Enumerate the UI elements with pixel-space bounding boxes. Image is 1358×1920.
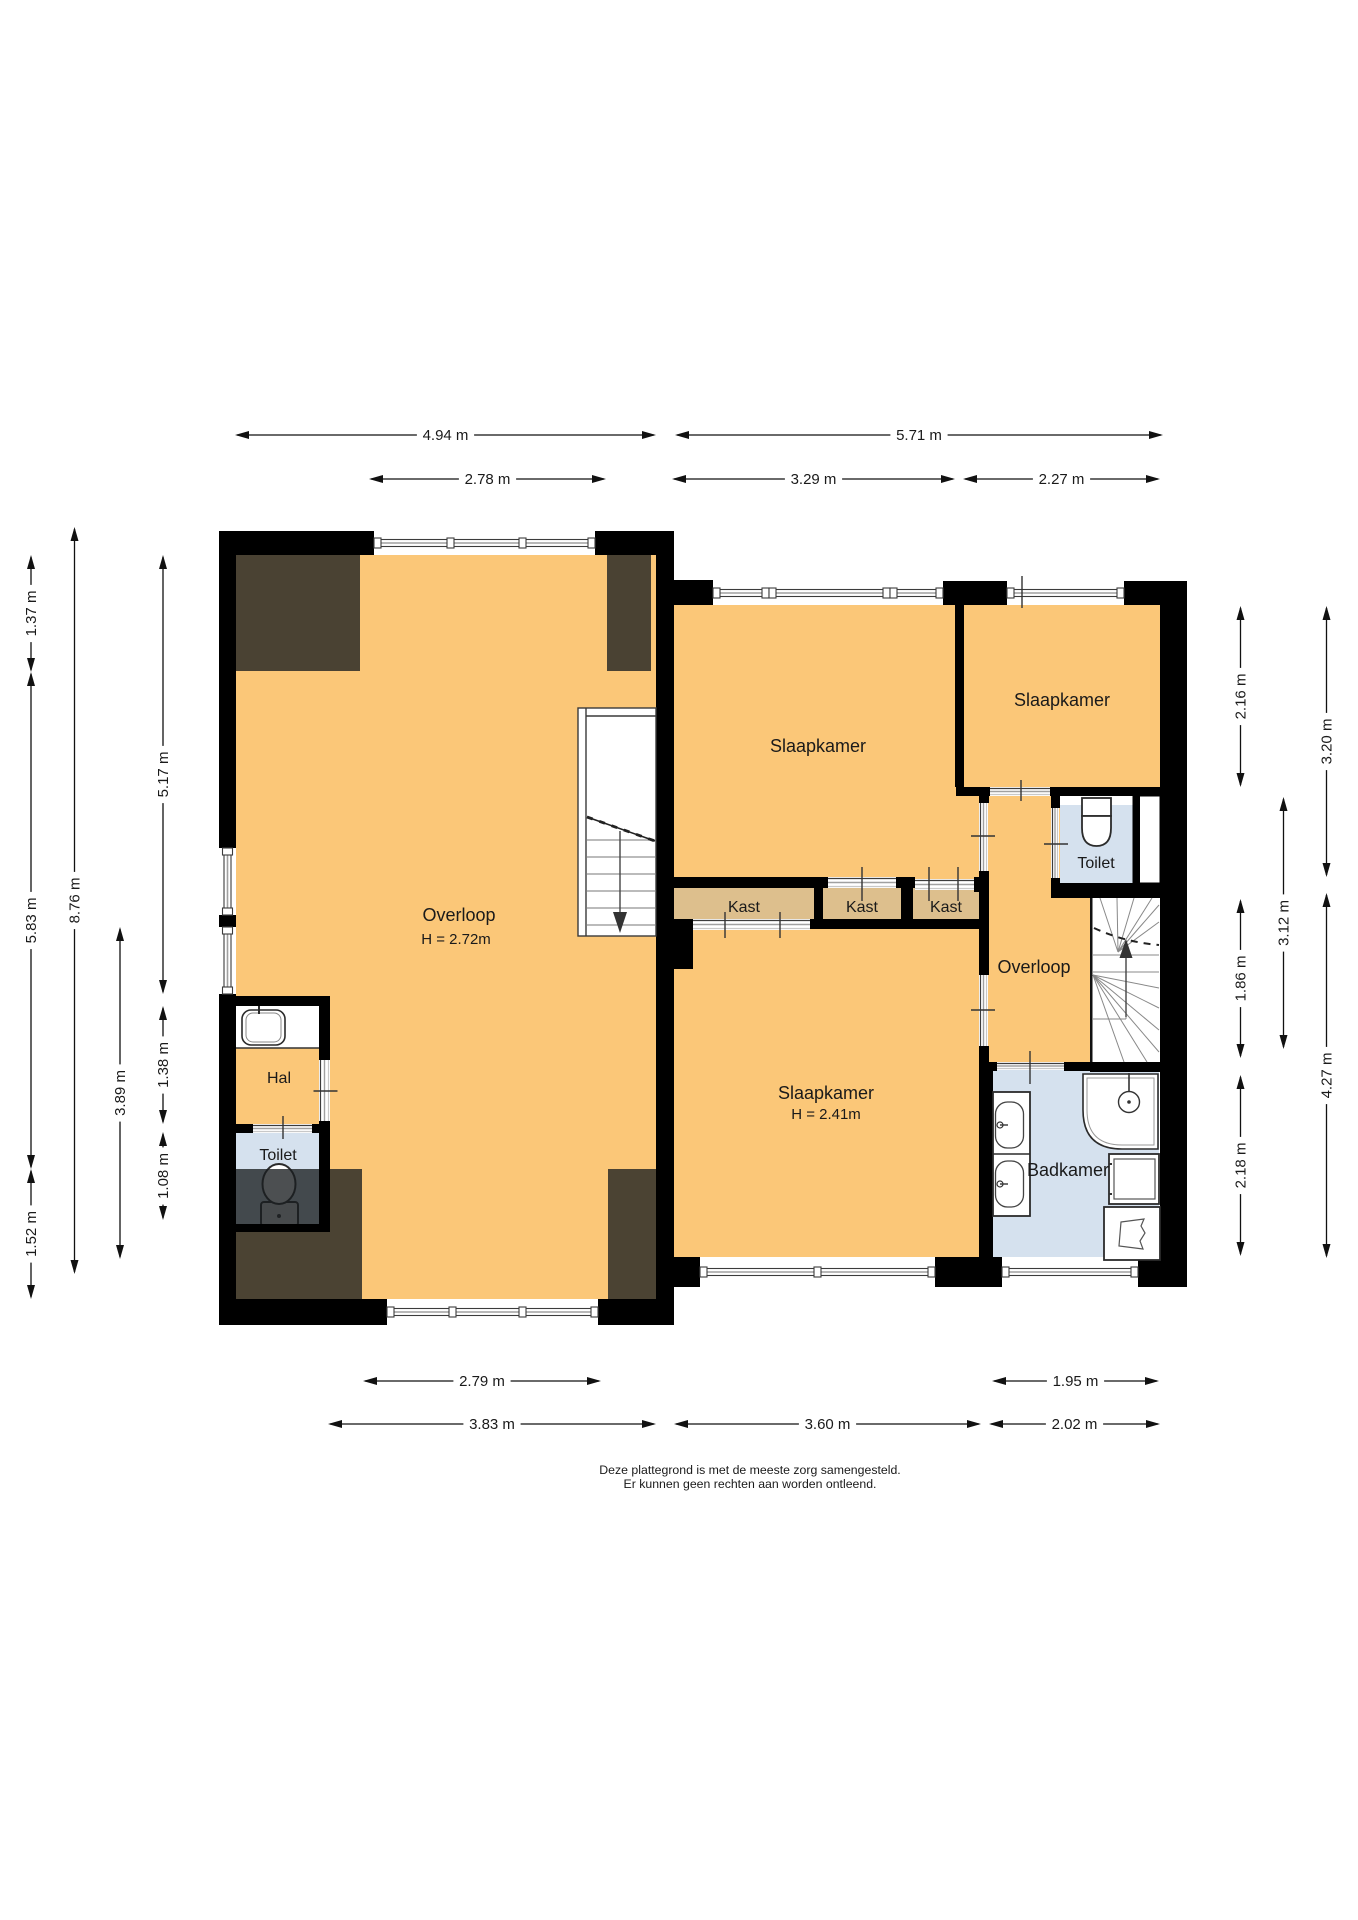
svg-text:Overloop: Overloop <box>422 905 495 925</box>
svg-text:3.60 m: 3.60 m <box>805 1416 851 1433</box>
svg-text:1.95 m: 1.95 m <box>1053 1373 1099 1390</box>
svg-text:4.94 m: 4.94 m <box>423 427 469 444</box>
svg-text:Kast: Kast <box>930 899 963 916</box>
svg-text:Overloop: Overloop <box>997 957 1070 977</box>
svg-text:Badkamer: Badkamer <box>1027 1160 1109 1180</box>
svg-text:3.29 m: 3.29 m <box>791 471 837 488</box>
svg-text:2.18 m: 2.18 m <box>1233 1143 1250 1189</box>
svg-text:1.08 m: 1.08 m <box>155 1153 172 1199</box>
svg-text:2.27 m: 2.27 m <box>1039 471 1085 488</box>
svg-text:4.27 m: 4.27 m <box>1319 1053 1336 1099</box>
svg-text:2.02 m: 2.02 m <box>1052 1416 1098 1433</box>
svg-text:H = 2.41m: H = 2.41m <box>791 1106 861 1123</box>
svg-text:3.20 m: 3.20 m <box>1319 719 1336 765</box>
svg-text:Hal: Hal <box>267 1070 291 1087</box>
svg-text:1.38 m: 1.38 m <box>155 1042 172 1088</box>
svg-text:3.89 m: 3.89 m <box>112 1070 129 1116</box>
svg-text:Deze plattegrond is met de mee: Deze plattegrond is met de meeste zorg s… <box>599 1463 900 1477</box>
svg-text:2.16 m: 2.16 m <box>1233 674 1250 720</box>
svg-text:1.86 m: 1.86 m <box>1233 956 1250 1002</box>
svg-text:Slaapkamer: Slaapkamer <box>770 736 866 756</box>
svg-text:Kast: Kast <box>846 899 879 916</box>
svg-text:3.12 m: 3.12 m <box>1276 900 1293 946</box>
svg-text:5.17 m: 5.17 m <box>155 752 172 798</box>
svg-text:5.71 m: 5.71 m <box>896 427 942 444</box>
svg-text:Toilet: Toilet <box>1077 855 1115 872</box>
svg-text:Slaapkamer: Slaapkamer <box>1014 690 1110 710</box>
svg-text:2.78 m: 2.78 m <box>465 471 511 488</box>
svg-text:1.37 m: 1.37 m <box>23 591 40 637</box>
svg-text:1.52 m: 1.52 m <box>23 1211 40 1257</box>
svg-text:8.76 m: 8.76 m <box>67 878 84 924</box>
svg-text:5.83 m: 5.83 m <box>23 898 40 944</box>
svg-text:Slaapkamer: Slaapkamer <box>778 1083 874 1103</box>
svg-text:3.83 m: 3.83 m <box>469 1416 515 1433</box>
svg-text:Kast: Kast <box>728 899 761 916</box>
svg-text:2.79 m: 2.79 m <box>459 1373 505 1390</box>
svg-text:Er kunnen geen rechten aan wor: Er kunnen geen rechten aan worden ontlee… <box>624 1477 877 1491</box>
svg-text:Toilet: Toilet <box>259 1147 297 1164</box>
svg-text:H = 2.72m: H = 2.72m <box>421 931 491 948</box>
